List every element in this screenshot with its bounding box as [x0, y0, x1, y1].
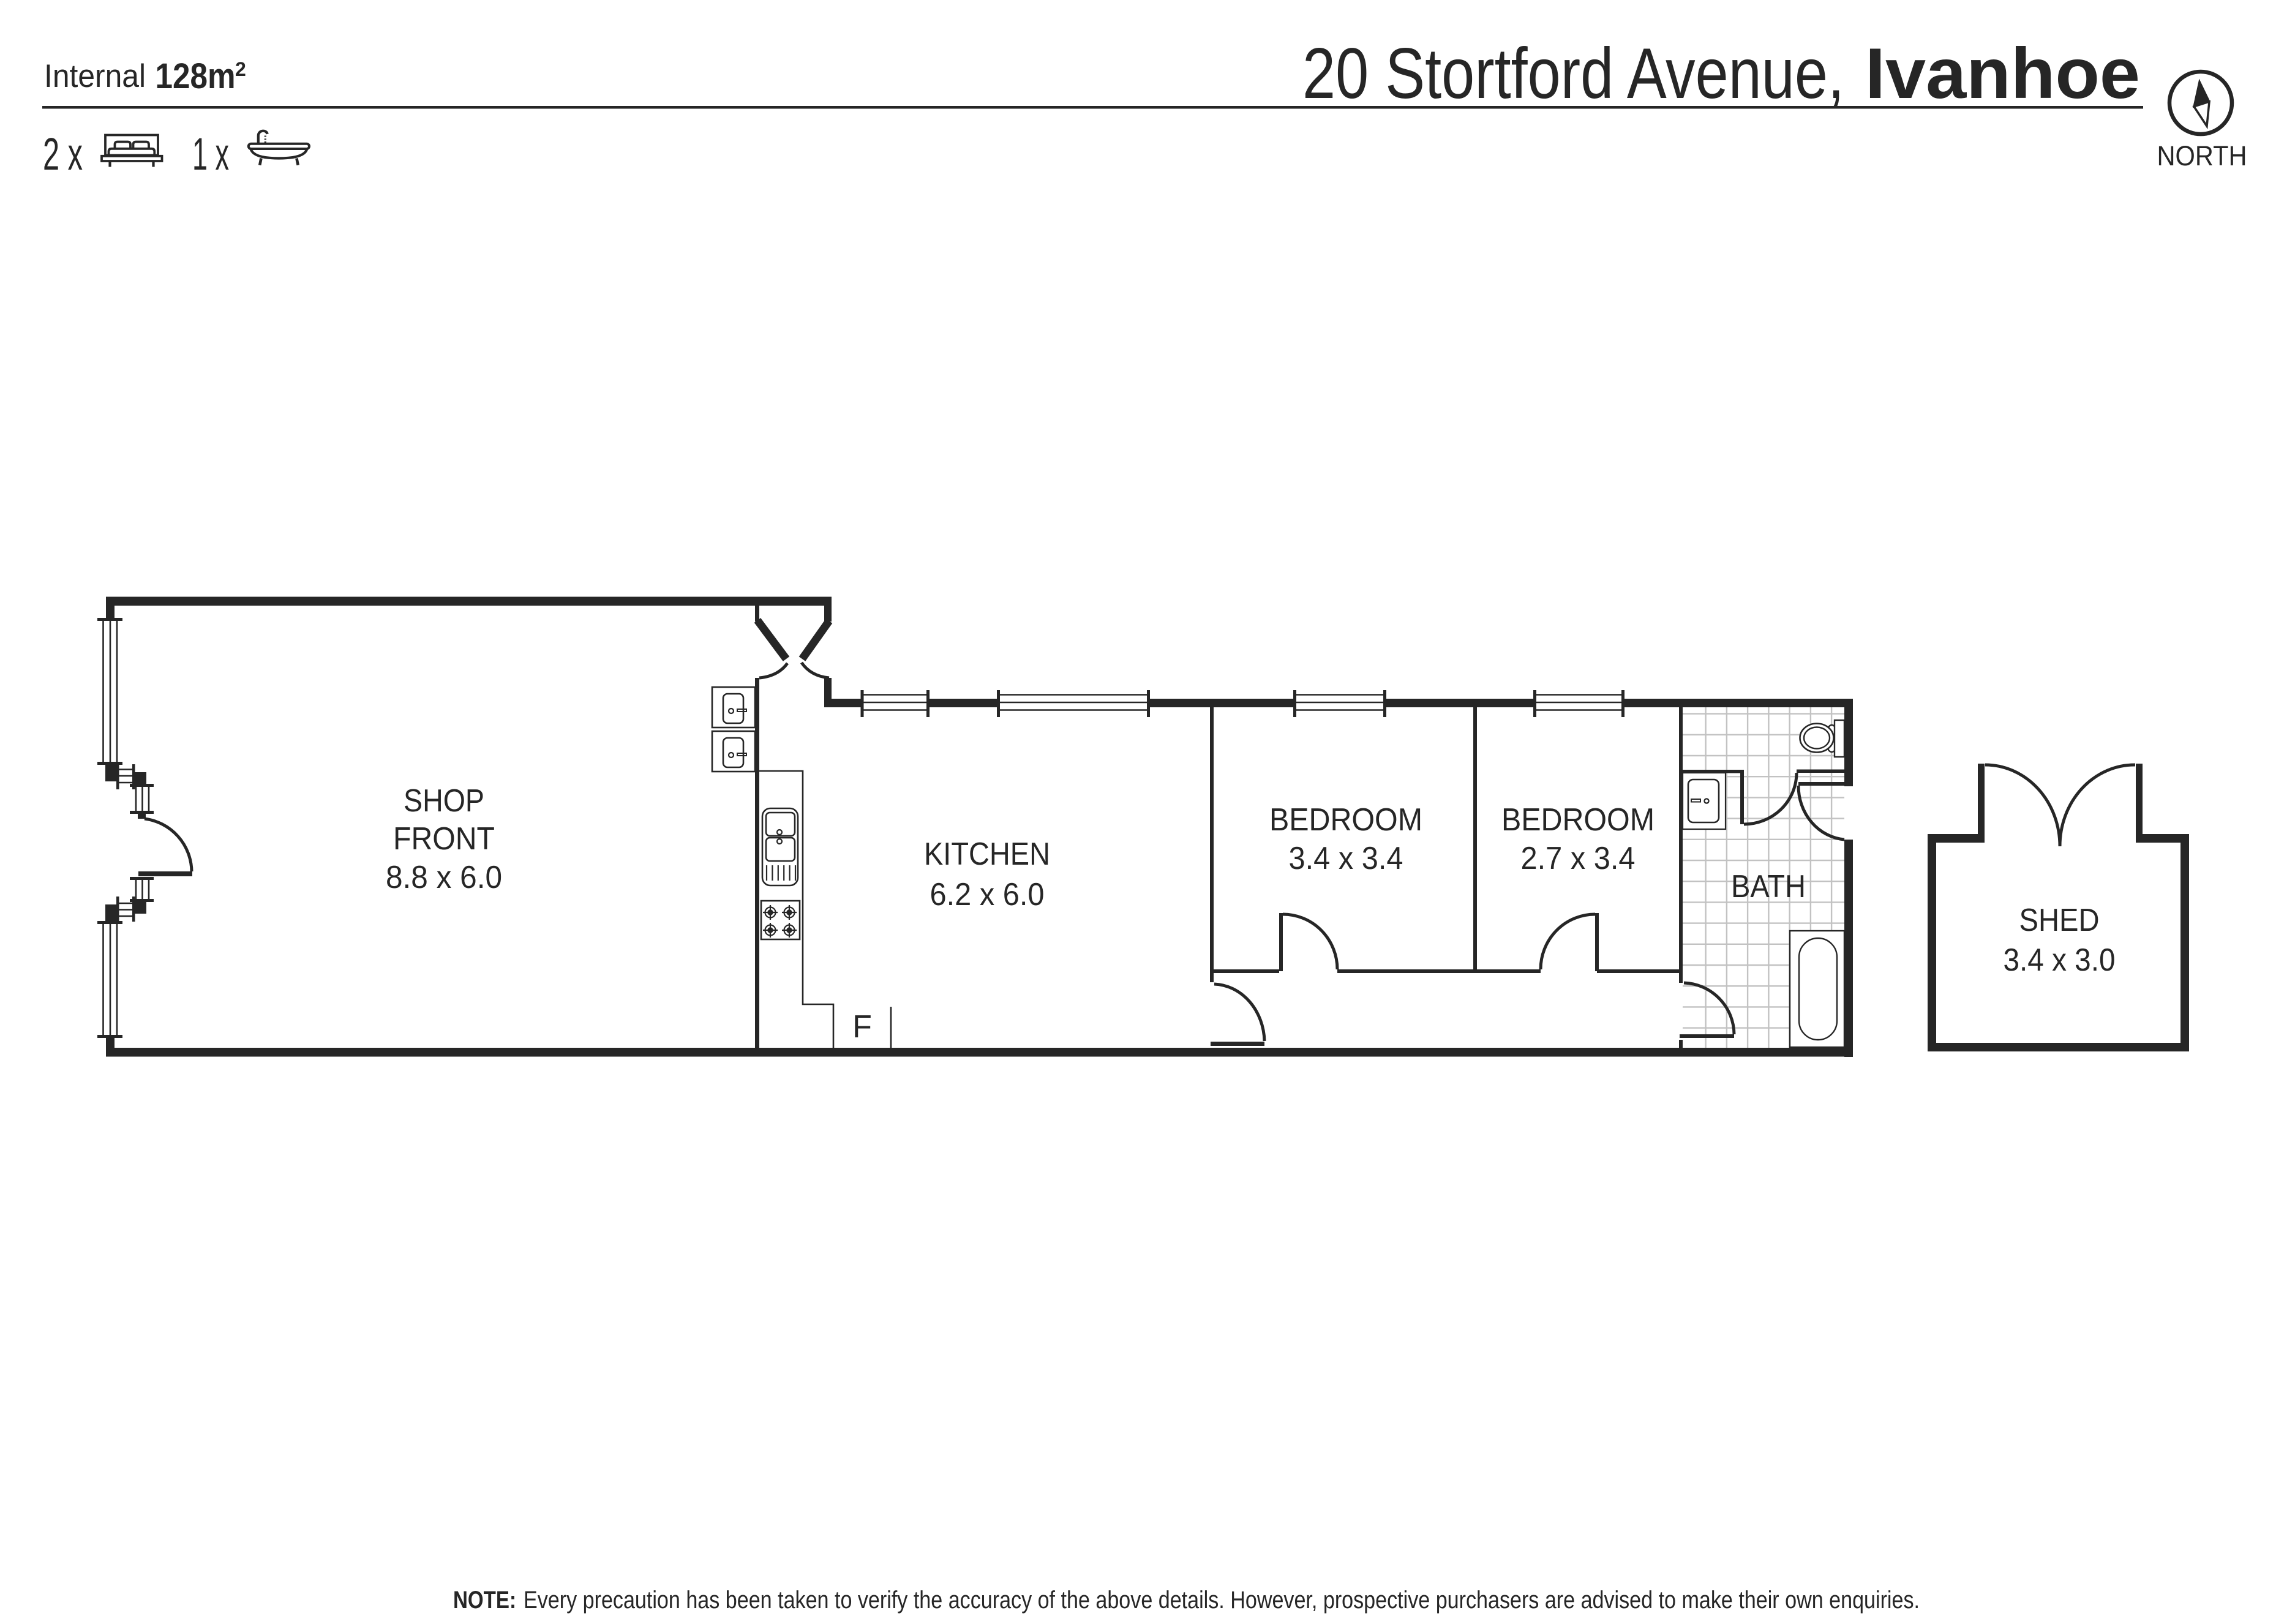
svg-text:6.2 x 6.0: 6.2 x 6.0 — [930, 877, 1045, 912]
svg-text:3.4 x 3.0: 3.4 x 3.0 — [2004, 942, 2116, 978]
svg-text:2 x: 2 x — [43, 129, 83, 179]
svg-text:BATH: BATH — [1731, 869, 1806, 904]
svg-text:Every precaution has been take: Every precaution has been taken to verif… — [524, 1587, 1920, 1614]
svg-text:NORTH: NORTH — [2157, 140, 2247, 171]
svg-text:BEDROOM: BEDROOM — [1269, 802, 1422, 838]
svg-text:20 Stortford Avenue,: 20 Stortford Avenue, — [1302, 33, 1844, 113]
svg-text:2.7 x 3.4: 2.7 x 3.4 — [1521, 841, 1636, 876]
svg-text:KITCHEN: KITCHEN — [924, 836, 1050, 872]
svg-text:1 x: 1 x — [192, 129, 229, 179]
svg-text:SHOP: SHOP — [404, 783, 484, 819]
svg-text:SHED: SHED — [2019, 903, 2100, 938]
svg-text:NOTE:: NOTE: — [453, 1587, 516, 1614]
svg-text:2: 2 — [235, 58, 246, 80]
svg-text:FRONT: FRONT — [393, 821, 495, 857]
svg-text:F: F — [852, 1009, 872, 1045]
svg-text:128m: 128m — [156, 56, 236, 96]
svg-text:BEDROOM: BEDROOM — [1501, 802, 1655, 838]
svg-text:Internal: Internal — [44, 58, 146, 94]
svg-text:3.4 x 3.4: 3.4 x 3.4 — [1289, 841, 1403, 876]
svg-text:8.8 x 6.0: 8.8 x 6.0 — [386, 860, 502, 895]
svg-text:Ivanhoe: Ivanhoe — [1865, 33, 2140, 113]
